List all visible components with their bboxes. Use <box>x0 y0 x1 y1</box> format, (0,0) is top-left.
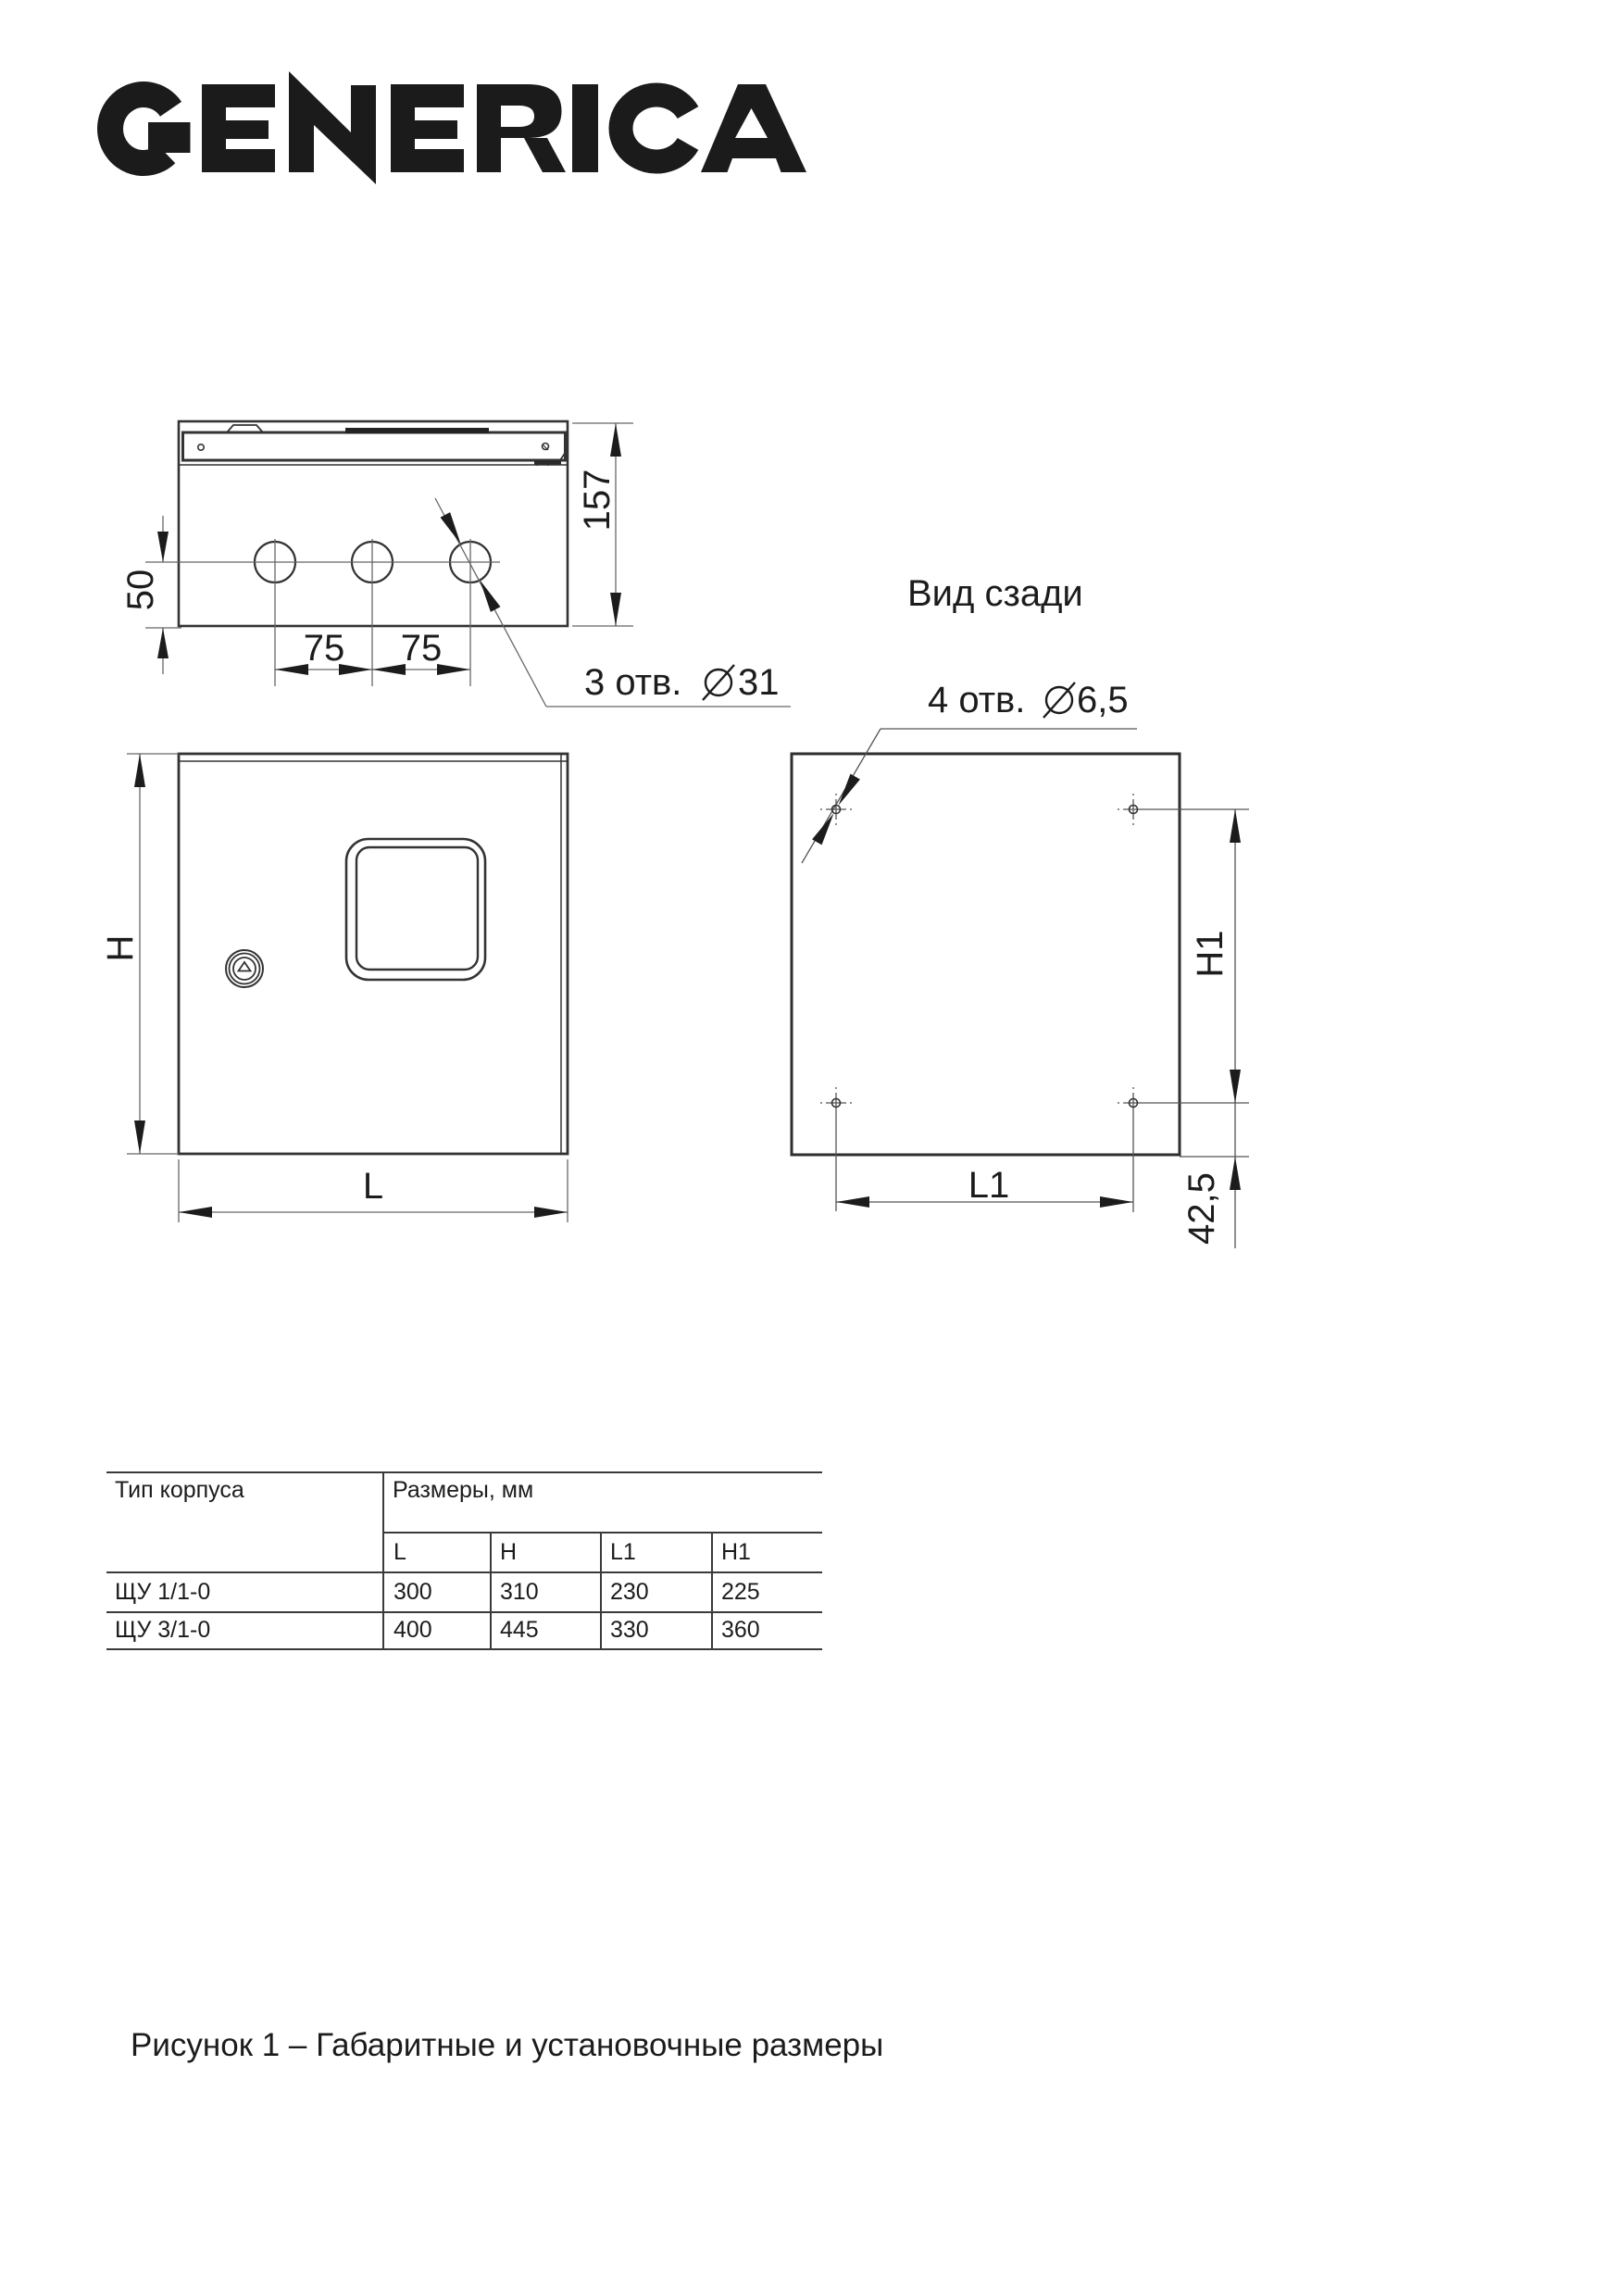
svg-text:445: 445 <box>500 1617 539 1643</box>
svg-text:225: 225 <box>721 1579 760 1605</box>
svg-text:75: 75 <box>304 628 345 669</box>
svg-text:L: L <box>363 1166 383 1207</box>
svg-text:ЩУ 3/1-0: ЩУ 3/1-0 <box>115 1617 210 1643</box>
svg-text:H: H <box>100 935 141 962</box>
svg-text:230: 230 <box>610 1579 649 1605</box>
svg-text:Тип корпуса: Тип корпуса <box>115 1477 244 1503</box>
svg-text:L1: L1 <box>968 1165 1010 1206</box>
svg-text:Размеры, мм: Размеры, мм <box>393 1477 533 1503</box>
svg-text:330: 330 <box>610 1617 649 1643</box>
svg-text:ЩУ 1/1-0: ЩУ 1/1-0 <box>115 1579 210 1605</box>
svg-text:H: H <box>500 1539 517 1565</box>
svg-text:31: 31 <box>738 662 780 703</box>
svg-text:Вид сзади: Вид сзади <box>907 573 1083 614</box>
svg-text:H1: H1 <box>1190 930 1230 977</box>
svg-text:360: 360 <box>721 1617 760 1643</box>
svg-text:H1: H1 <box>721 1539 751 1565</box>
svg-text:42,5: 42,5 <box>1181 1172 1222 1245</box>
svg-text:6,5: 6,5 <box>1077 680 1129 720</box>
svg-text:3 отв.: 3 отв. <box>584 662 681 703</box>
svg-text:157: 157 <box>577 469 618 532</box>
svg-text:400: 400 <box>394 1617 432 1643</box>
svg-text:4 отв.: 4 отв. <box>928 680 1025 720</box>
svg-text:L1: L1 <box>610 1539 636 1565</box>
svg-text:310: 310 <box>500 1579 539 1605</box>
svg-text:75: 75 <box>401 628 443 669</box>
svg-text:50: 50 <box>120 570 161 611</box>
svg-text:L: L <box>394 1539 406 1565</box>
svg-text:Рисунок 1 – Габаритные и устан: Рисунок 1 – Габаритные и установочные ра… <box>131 2027 883 2063</box>
svg-text:300: 300 <box>394 1579 432 1605</box>
